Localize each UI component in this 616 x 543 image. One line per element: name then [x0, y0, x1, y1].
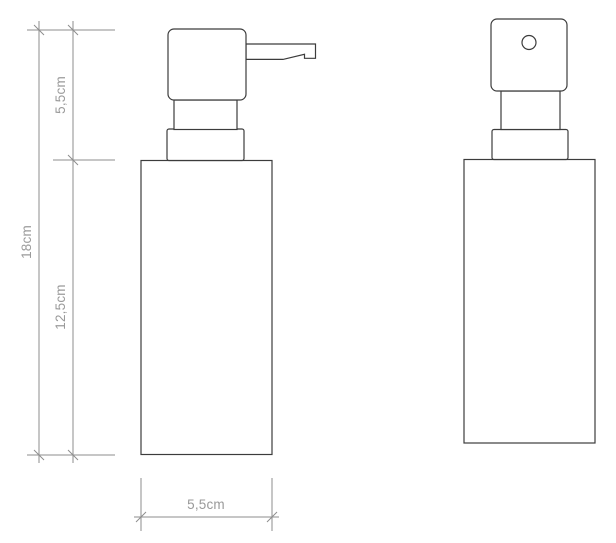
- front-view: [141, 29, 316, 455]
- side-pump-head: [491, 19, 567, 91]
- body-height-label: 12,5cm: [53, 284, 68, 329]
- side-neck: [501, 91, 560, 130]
- dispenser-technical-drawing: 5,5cm 12,5cm 18cm 5,5cm: [0, 0, 616, 543]
- width-label: 5,5cm: [187, 497, 225, 512]
- side-body: [464, 160, 595, 444]
- front-body: [141, 161, 272, 455]
- side-collar: [492, 130, 568, 160]
- height-dimensions: 5,5cm 12,5cm 18cm: [19, 21, 115, 463]
- width-dimension: 5,5cm: [134, 478, 279, 531]
- side-view: [464, 19, 595, 443]
- side-nozzle-outlet-hole: [522, 36, 536, 50]
- front-collar: [167, 129, 244, 161]
- total-height-label: 18cm: [19, 225, 34, 259]
- front-neck: [174, 100, 237, 130]
- front-nozzle-spout: [246, 44, 316, 59]
- front-pump-head: [168, 29, 246, 100]
- technical-drawing-page: 5,5cm 12,5cm 18cm 5,5cm: [0, 0, 616, 543]
- pump-height-label: 5,5cm: [53, 76, 68, 114]
